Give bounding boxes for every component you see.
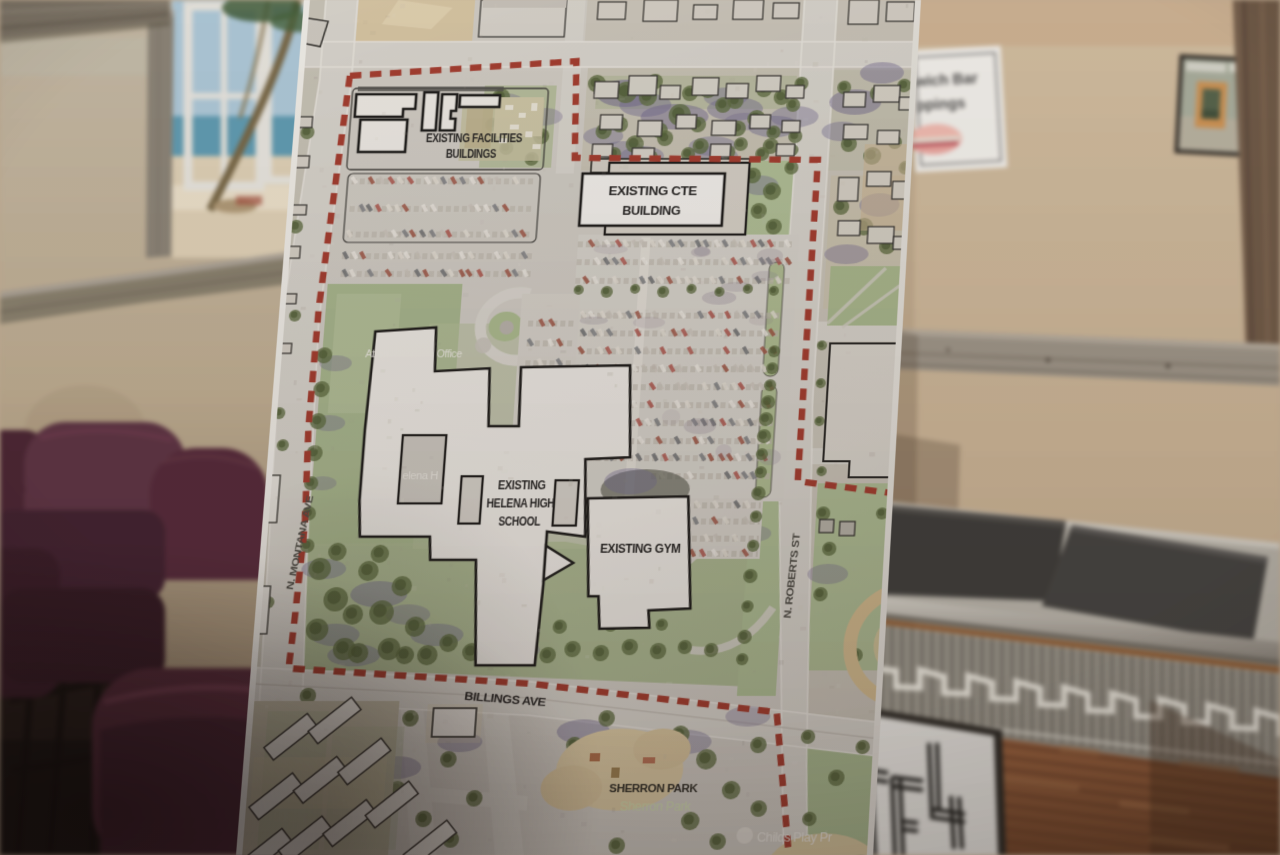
svg-text:ppings: ppings	[916, 95, 966, 115]
svg-text:wich Bar: wich Bar	[914, 70, 979, 91]
